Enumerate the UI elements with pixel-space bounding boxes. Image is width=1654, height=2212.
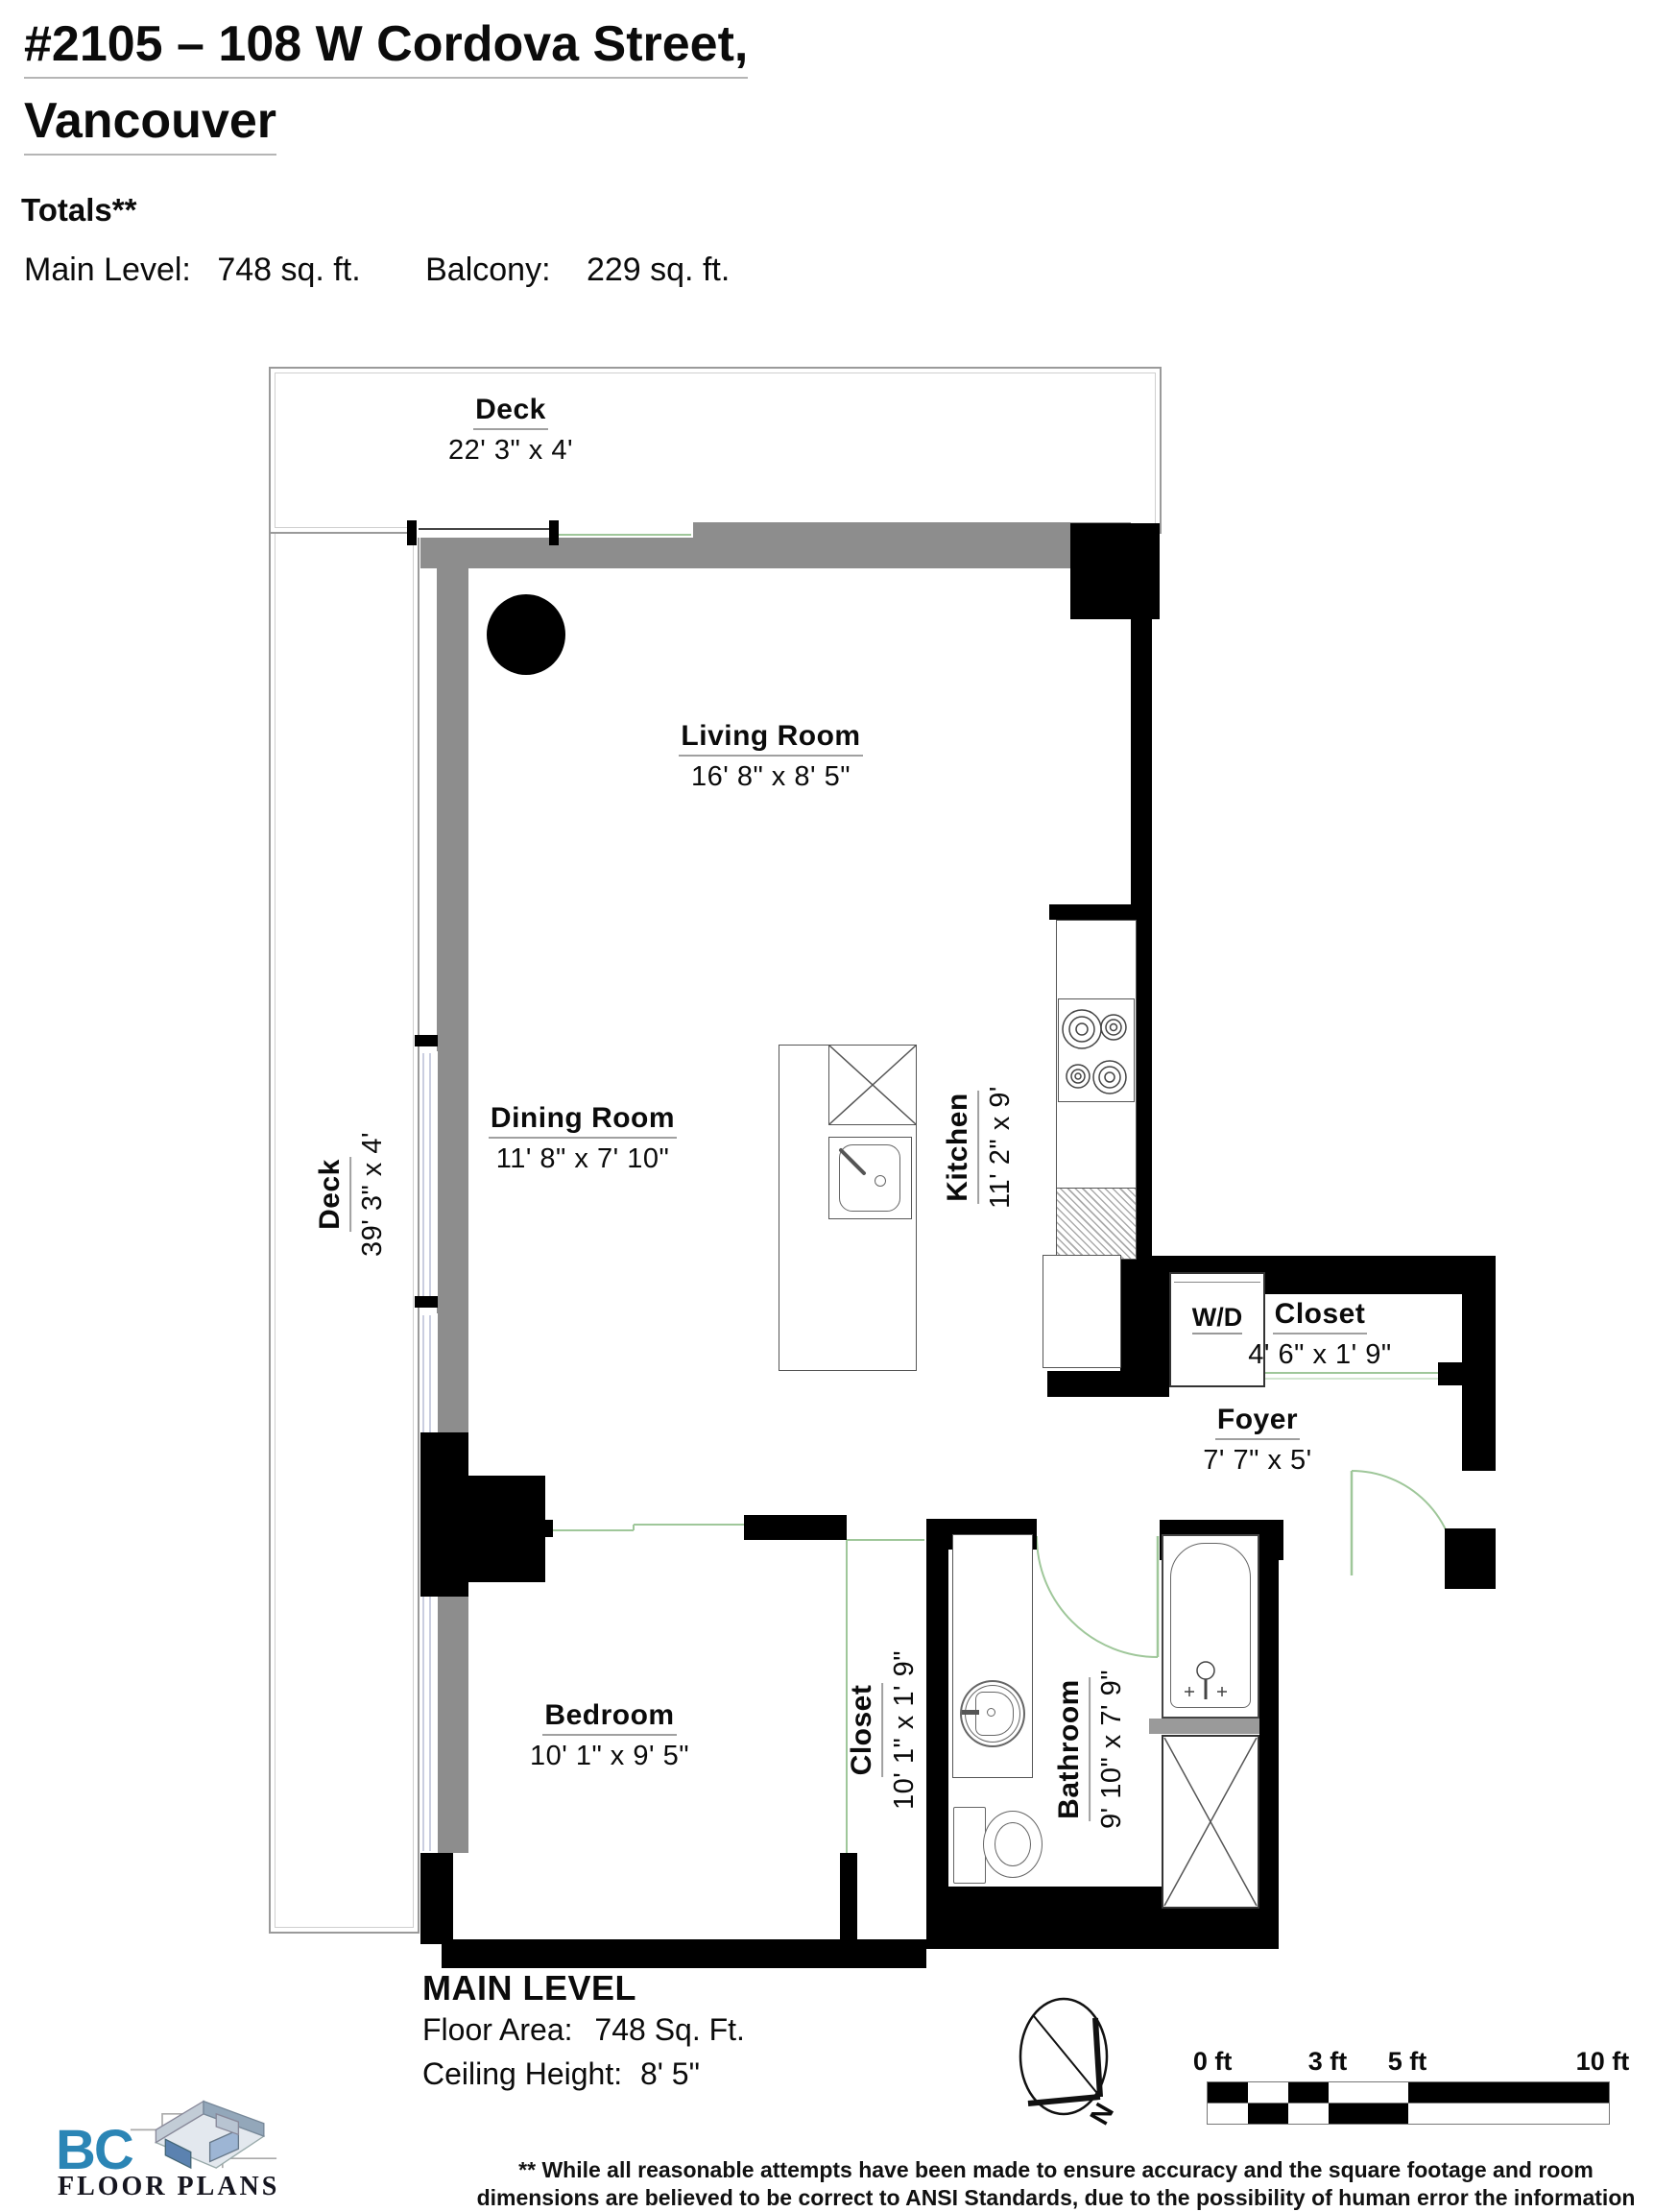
island-sink-drain — [875, 1175, 886, 1187]
scale-cell — [1288, 2104, 1329, 2124]
room-dims: 4' 6" x 1' 9" — [1214, 1339, 1426, 1370]
room-name: Dining Room — [489, 1102, 677, 1139]
wall-kitchen-top — [1049, 904, 1152, 920]
wall-closet-bottom-jamb — [840, 1853, 857, 1942]
window-jamb — [407, 520, 417, 545]
main-level-value: 748 sq. ft. — [217, 252, 360, 288]
scale-tick-5: 5 ft — [1388, 2047, 1427, 2077]
room-name: Closet — [1273, 1298, 1368, 1334]
window-jamb — [549, 520, 559, 545]
scale-tick-0: 0 ft — [1193, 2047, 1233, 2077]
label-foyer: Foyer 7' 7" x 5' — [1142, 1404, 1373, 1476]
title-line2: Vancouver — [24, 92, 276, 156]
room-dims: 11' 2" x 9' — [984, 1086, 1018, 1209]
wall-tblock-vertical — [420, 1432, 468, 1597]
scale-tick-10: 10 ft — [1576, 2047, 1630, 2077]
wall-kitchen-bottom — [1047, 1371, 1152, 1397]
toilet-tank — [953, 1807, 986, 1884]
scale-bar-row-top — [1208, 2082, 1609, 2103]
bathtub — [1162, 1534, 1259, 1719]
floor-area-row: Floor Area: 748 Sq. Ft. — [422, 2012, 745, 2048]
label-deck-left: Deck 39' 3" x 4' — [313, 1132, 390, 1257]
toilet-bowl-inner — [995, 1822, 1031, 1866]
floor-area-label: Floor Area: — [422, 2012, 573, 2047]
room-name: Bathroom — [1052, 1677, 1091, 1821]
window-dining — [420, 1051, 438, 1298]
balcony-label: Balcony: — [425, 252, 550, 288]
wall-tblock-arm — [468, 1476, 545, 1582]
wall-corner-bottomleft — [420, 1853, 453, 1944]
totals-heading: Totals** — [21, 192, 136, 228]
label-bedroom-closet: Closet 10' 1" x 1' 9" — [845, 1650, 922, 1810]
title-line1: #2105 – 108 W Cordova Street, — [24, 15, 748, 79]
ceiling-height-row: Ceiling Height: 8' 5" — [422, 2056, 700, 2092]
compass-north-label: N — [1084, 2098, 1120, 2130]
wall-bathroom-left — [926, 1519, 948, 1949]
disclaimer-text: ** While all reasonable attempts have be… — [461, 2156, 1651, 2212]
scale-bar-row-bottom — [1208, 2103, 1609, 2124]
room-dims: 16' 8" x 8' 5" — [627, 761, 915, 792]
column-living-room — [487, 594, 565, 675]
scale-bar — [1207, 2081, 1610, 2125]
scale-cell — [1208, 2082, 1248, 2103]
logo-floor-plans-text: FLOOR PLANS — [58, 2172, 279, 2202]
ceiling-value: 8' 5" — [640, 2056, 700, 2091]
room-dims: 9' 10" x 7' 9" — [1095, 1670, 1129, 1829]
wall-living-right — [1131, 619, 1152, 907]
scale-cell — [1408, 2104, 1609, 2124]
room-dims: 10' 1" x 9' 5" — [466, 1741, 754, 1771]
room-name: Deck — [313, 1157, 351, 1232]
scale-cell — [1248, 2082, 1288, 2103]
page-title: #2105 – 108 W Cordova Street, Vancouver — [24, 15, 748, 156]
room-dims: 11' 8" x 7' 10" — [439, 1143, 727, 1174]
wall-gray-left — [437, 568, 468, 1853]
room-name: Foyer — [1215, 1404, 1300, 1440]
wall-kitchen-right — [1136, 920, 1152, 1260]
scale-tick-3: 3 ft — [1308, 2047, 1348, 2077]
island-dishwasher — [828, 1045, 917, 1125]
linen-closet — [1162, 1735, 1259, 1909]
main-level-label: Main Level: — [24, 252, 191, 288]
label-dining-room: Dining Room 11' 8" x 7' 10" — [439, 1102, 727, 1174]
scale-cell — [1248, 2104, 1288, 2124]
window-jamb — [415, 1035, 438, 1046]
room-dims: 39' 3" x 4' — [356, 1132, 390, 1257]
label-kitchen: Kitchen 11' 2" x 9' — [941, 1086, 1018, 1209]
island-sink-basin — [839, 1144, 900, 1212]
scale-cell — [1329, 2104, 1408, 2124]
room-dims: 22' 3" x 4' — [367, 435, 655, 466]
dishwasher — [1056, 1188, 1137, 1260]
floor-area-value: 748 Sq. Ft. — [594, 2012, 745, 2047]
scale-cell — [1329, 2082, 1408, 2103]
kitchen-corner-counter — [1043, 1255, 1121, 1368]
room-name: Kitchen — [941, 1091, 979, 1204]
balcony-value: 229 sq. ft. — [587, 252, 730, 288]
room-name: Deck — [473, 394, 548, 430]
scale-cell — [1408, 2082, 1609, 2103]
label-bedroom: Bedroom 10' 1" x 9' 5" — [466, 1699, 754, 1771]
label-living-room: Living Room 16' 8" x 8' 5" — [627, 720, 915, 792]
room-dims: 7' 7" x 5' — [1142, 1445, 1373, 1476]
label-bathroom: Bathroom 9' 10" x 7' 9" — [1052, 1670, 1129, 1829]
bathroom-sink-tap — [962, 1710, 979, 1715]
scale-cell — [1208, 2104, 1248, 2124]
wall-bedroom-bottom — [442, 1939, 926, 1968]
label-entry-closet: Closet 4' 6" x 1' 9" — [1214, 1298, 1426, 1370]
wall-bedroom-top-stub — [744, 1515, 847, 1540]
ceiling-label: Ceiling Height: — [422, 2056, 622, 2091]
label-deck-top: Deck 22' 3" x 4' — [367, 394, 655, 466]
logo-isometric-plan-icon — [127, 2095, 280, 2177]
scale-cell — [1288, 2082, 1329, 2103]
totals-row: Main Level: 748 sq. ft. Balcony: 229 sq.… — [24, 252, 730, 289]
washer-dryer-panel-line — [1174, 1282, 1260, 1283]
wall-tblock-nub — [545, 1520, 553, 1537]
stove — [1058, 998, 1135, 1102]
wall-column-topright — [1070, 523, 1160, 619]
floor-plan-page: #2105 – 108 W Cordova Street, Vancouver … — [0, 0, 1654, 2212]
room-name: Living Room — [679, 720, 862, 757]
bc-floor-plans-logo: BC FLOOR PLANS — [48, 2093, 298, 2208]
room-name: Bedroom — [542, 1699, 676, 1736]
room-name: Closet — [845, 1683, 883, 1778]
window-jamb — [415, 1296, 438, 1308]
bathroom-sink-handle — [987, 1708, 995, 1717]
wall-entry-corner — [1445, 1528, 1496, 1589]
bathtub-basin — [1170, 1543, 1251, 1708]
room-dims: 10' 1" x 1' 9" — [888, 1650, 922, 1810]
wall-closet-door-jamb — [1438, 1362, 1491, 1385]
level-title: MAIN LEVEL — [422, 1968, 636, 2008]
bathtub-ledge — [1149, 1719, 1259, 1734]
